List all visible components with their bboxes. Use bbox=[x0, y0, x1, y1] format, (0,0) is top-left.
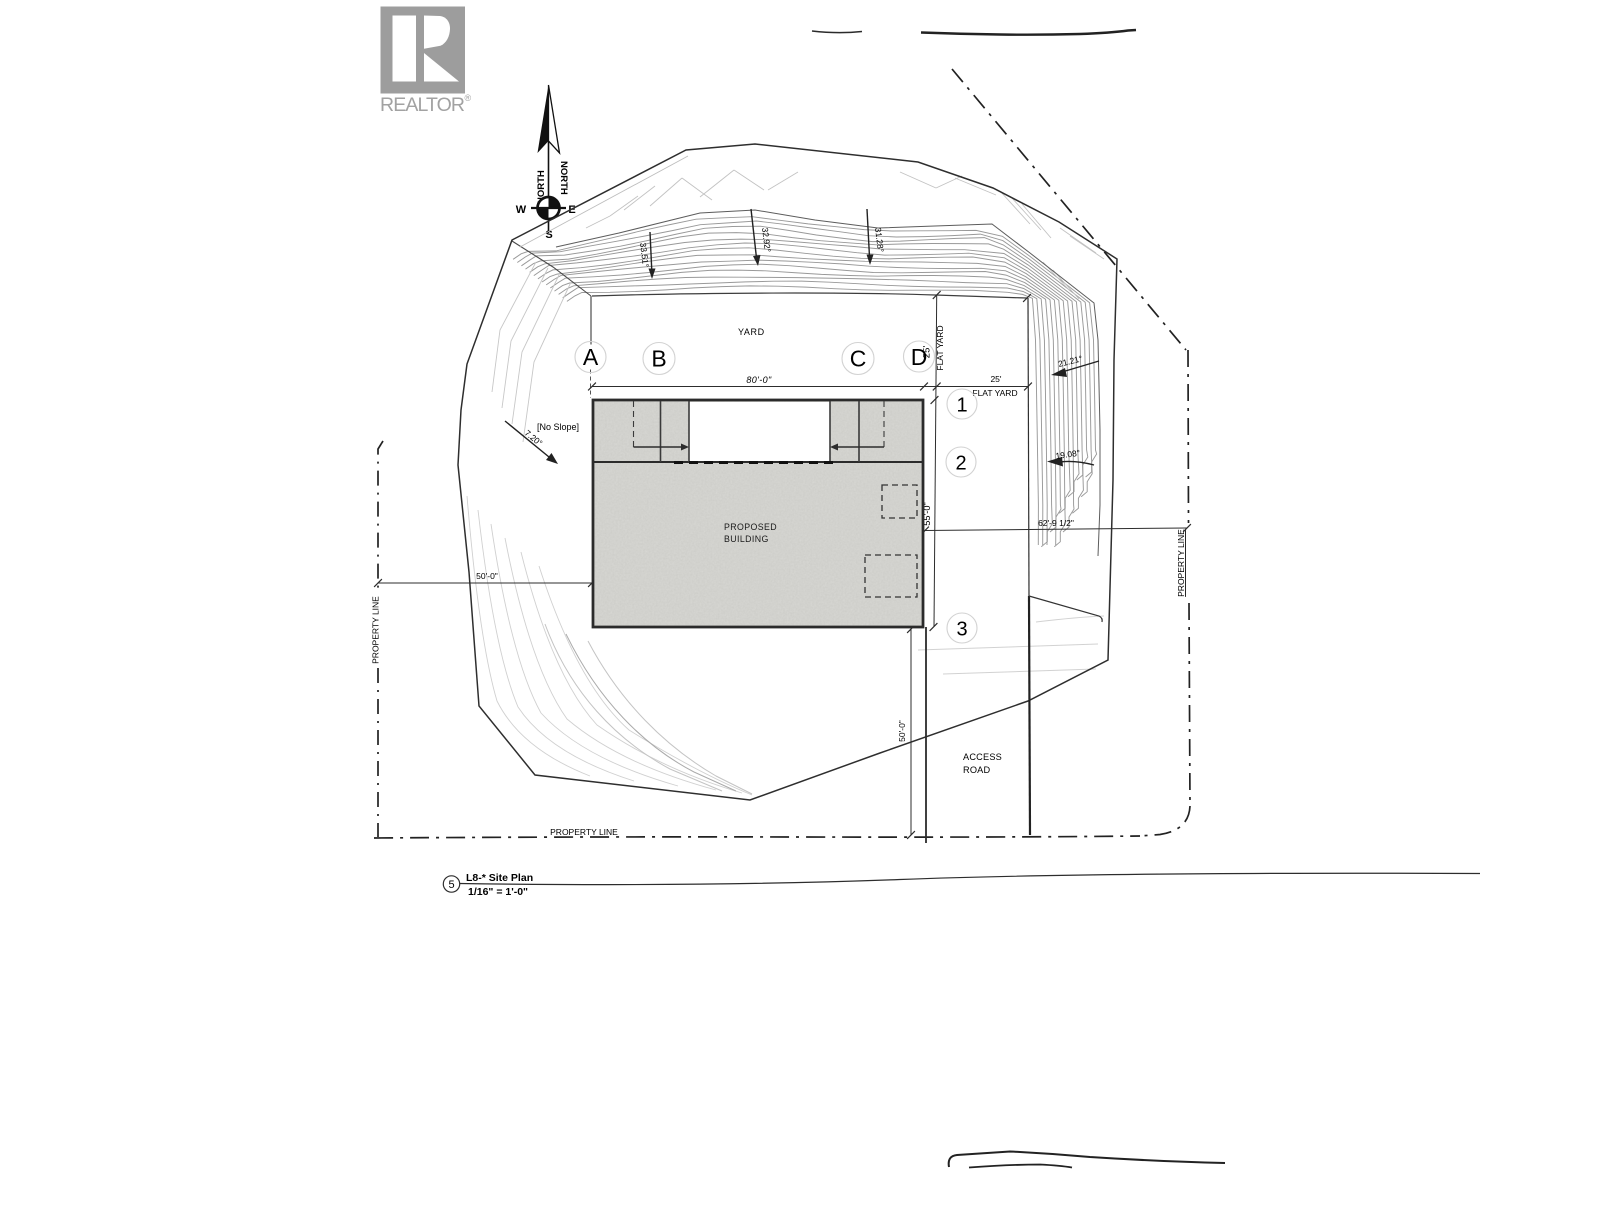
svg-text:1/16" = 1'-0": 1/16" = 1'-0" bbox=[468, 886, 528, 898]
svg-text:C: C bbox=[850, 346, 867, 372]
svg-text:PROPERTY LINE: PROPERTY LINE bbox=[1176, 529, 1186, 597]
svg-text:3: 3 bbox=[956, 619, 967, 641]
svg-text:62'-9 1/2": 62'-9 1/2" bbox=[1038, 518, 1074, 528]
svg-text:FLAT YARD: FLAT YARD bbox=[935, 325, 945, 370]
svg-text:D: D bbox=[911, 344, 928, 370]
svg-text:[No Slope]: [No Slope] bbox=[537, 422, 579, 432]
svg-text:ROAD: ROAD bbox=[963, 765, 991, 775]
svg-text:L8-* Site Plan: L8-* Site Plan bbox=[466, 872, 533, 884]
svg-text:REALTOR: REALTOR bbox=[380, 94, 465, 116]
svg-text:25': 25' bbox=[990, 374, 1001, 384]
svg-text:BUILDING: BUILDING bbox=[724, 534, 769, 544]
svg-text:®: ® bbox=[465, 93, 472, 103]
svg-text:PROPOSED: PROPOSED bbox=[724, 522, 777, 532]
svg-text:FLAT YARD: FLAT YARD bbox=[972, 388, 1017, 398]
svg-text:ACCESS: ACCESS bbox=[963, 752, 1002, 762]
svg-text:PROPERTY LINE: PROPERTY LINE bbox=[371, 596, 381, 664]
svg-text:PROPERTY LINE: PROPERTY LINE bbox=[550, 827, 618, 837]
svg-text:YARD: YARD bbox=[738, 327, 765, 337]
svg-text:80'-0": 80'-0" bbox=[746, 375, 772, 385]
svg-text:A: A bbox=[583, 344, 599, 370]
svg-text:5: 5 bbox=[448, 879, 454, 891]
svg-text:2: 2 bbox=[955, 453, 966, 475]
svg-text:50'-0": 50'-0" bbox=[897, 720, 907, 742]
svg-text:B: B bbox=[651, 346, 666, 372]
svg-text:1: 1 bbox=[956, 395, 967, 417]
svg-text:NORTH: NORTH bbox=[558, 161, 569, 195]
svg-text:W: W bbox=[516, 204, 527, 216]
svg-text:50'-0": 50'-0" bbox=[476, 571, 498, 581]
